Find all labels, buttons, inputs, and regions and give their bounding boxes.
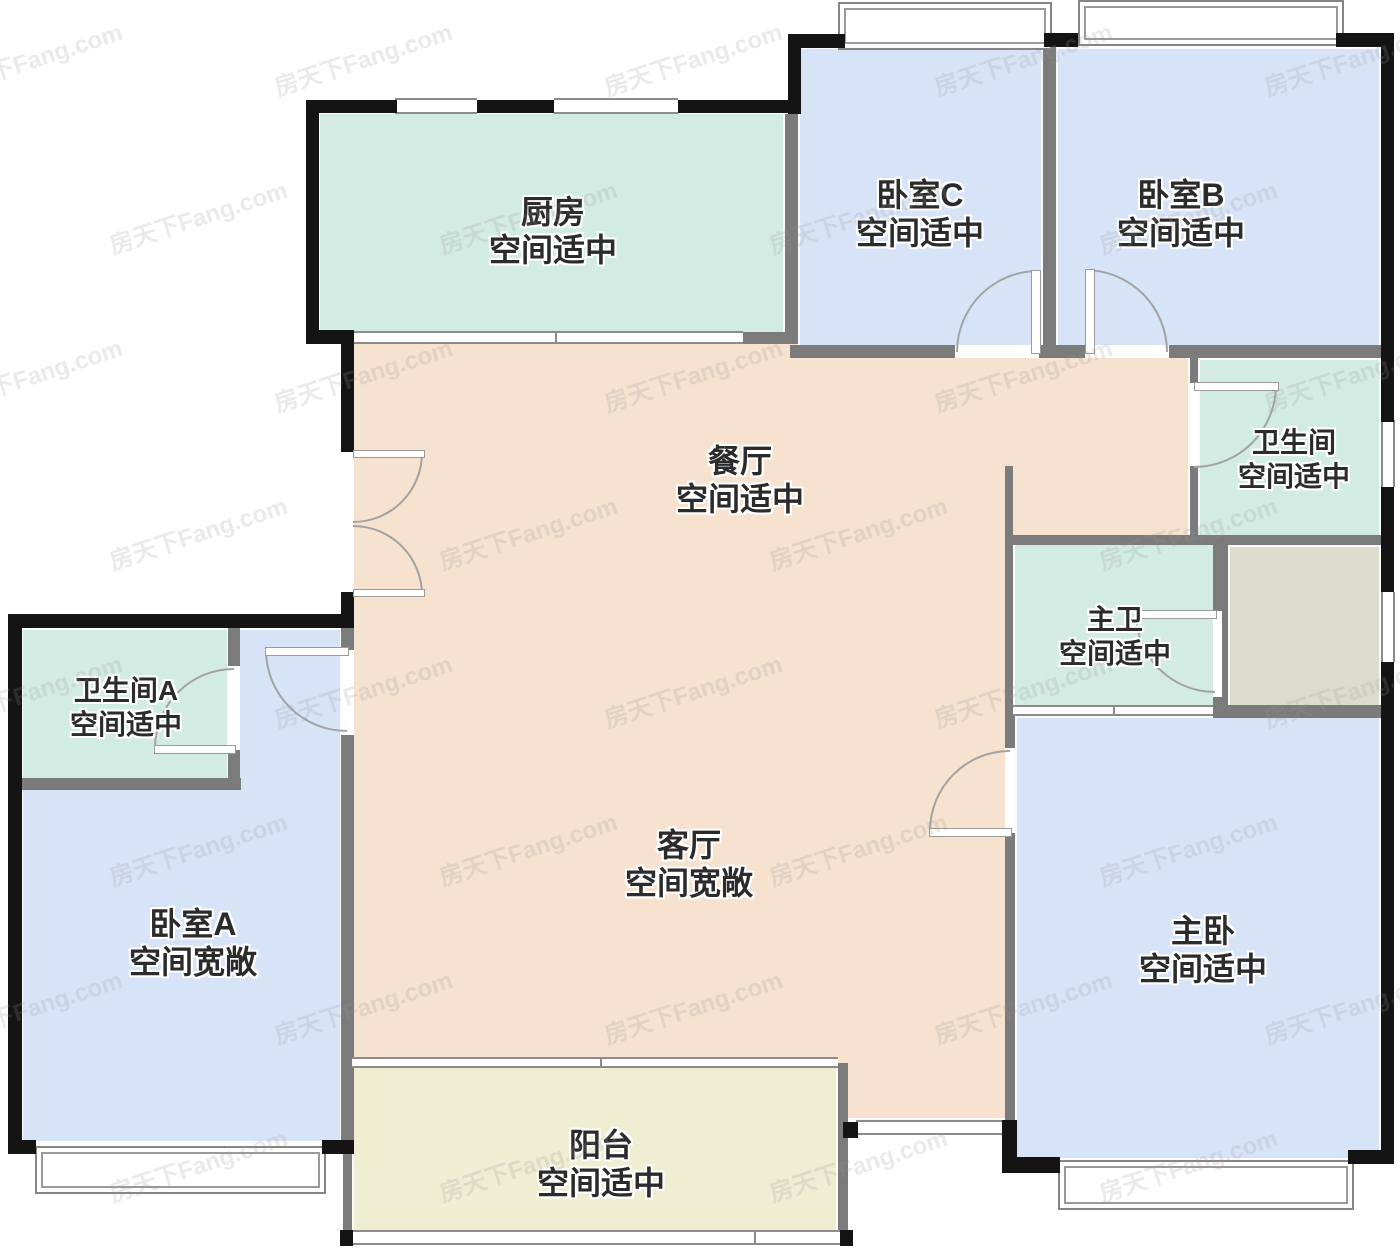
room-note: 空间适中: [70, 708, 182, 742]
door-leaf: [154, 745, 236, 754]
door-leaf: [929, 828, 1012, 837]
exterior-wall-segment: [322, 1140, 354, 1154]
exterior-wall-segment: [678, 100, 800, 113]
exterior-wall-segment: [843, 1122, 858, 1138]
room-label-master-bedroom: 主卧 空间适中: [1139, 912, 1267, 988]
interior-wall-segment: [228, 628, 240, 668]
room-label-bathroom: 卫生间 空间适中: [1238, 426, 1350, 494]
room-name: 客厅: [625, 826, 753, 864]
watermark-text: 房天下Fang.com: [599, 12, 786, 103]
room-name: 卫生间: [1238, 426, 1350, 460]
exterior-wall-segment: [306, 100, 319, 341]
watermark-text: 房天下Fang.com: [0, 12, 126, 103]
bay-window: [35, 1146, 326, 1194]
room-name: 厨房: [489, 193, 617, 231]
room-note: 空间适中: [676, 480, 804, 518]
door-leaf: [353, 589, 425, 597]
room-name: 主卧: [1139, 912, 1267, 950]
room-name: 主卫: [1059, 603, 1171, 637]
window: [1381, 592, 1395, 662]
room-note: 空间适中: [489, 231, 617, 269]
window: [352, 331, 743, 344]
exterior-wall-segment: [1381, 34, 1394, 360]
interior-wall-segment: [1005, 833, 1015, 1123]
interior-wall-segment: [1005, 535, 1390, 545]
room-note: 空间适中: [537, 1164, 665, 1202]
bay-window: [838, 2, 1052, 50]
interior-wall-segment: [1213, 705, 1385, 718]
interior-wall-segment: [1005, 466, 1013, 716]
room-label-bedroom-c: 卧室C 空间适中: [856, 176, 984, 252]
room-note: 空间适中: [1059, 637, 1171, 671]
room-label-kitchen: 厨房 空间适中: [489, 193, 617, 269]
room-closet: [1228, 545, 1381, 707]
room-label-living: 客厅 空间宽敞: [625, 826, 753, 902]
interior-wall-segment: [21, 778, 241, 790]
exterior-wall-segment: [788, 34, 845, 48]
exterior-wall-segment: [8, 1140, 36, 1154]
bay-window: [1058, 1160, 1354, 1210]
exterior-wall-segment: [341, 330, 354, 452]
door-leaf: [1194, 382, 1279, 391]
room-note: 空间宽敞: [129, 943, 257, 981]
exterior-wall-segment: [1381, 662, 1394, 1163]
room-name: 餐厅: [676, 442, 804, 480]
watermark-text: 房天下Fang.com: [269, 12, 456, 103]
door-leaf: [353, 450, 425, 458]
exterior-wall-segment: [8, 614, 22, 1154]
room-note: 空间适中: [1139, 950, 1267, 988]
exterior-wall-segment: [1348, 1150, 1394, 1164]
exterior-wall-segment: [306, 100, 397, 113]
room-label-bathroom-a: 卫生间A 空间适中: [70, 674, 182, 742]
interior-wall-segment: [1043, 47, 1056, 347]
room-label-bedroom-a: 卧室A 空间宽敞: [129, 905, 257, 981]
exterior-wall-segment: [340, 1230, 353, 1246]
bay-window: [1078, 0, 1344, 46]
room-name: 卫生间A: [70, 674, 182, 708]
window: [395, 98, 477, 114]
exterior-wall-segment: [1381, 487, 1394, 592]
window: [1381, 420, 1395, 487]
interior-wall-segment: [838, 1063, 848, 1230]
room-label-balcony: 阳台 空间适中: [537, 1126, 665, 1202]
window: [856, 1120, 1002, 1135]
exterior-wall-segment: [8, 614, 354, 628]
room-label-master-bath: 主卫 空间适中: [1059, 603, 1171, 671]
watermark-text: 房天下Fang.com: [104, 170, 291, 261]
watermark-text: 房天下Fang.com: [0, 328, 126, 419]
room-note: 空间适中: [1238, 460, 1350, 494]
glass-partition: [1013, 705, 1213, 716]
exterior-wall-segment: [840, 1230, 853, 1246]
room-label-bedroom-b: 卧室B 空间适中: [1117, 176, 1245, 252]
interior-wall-segment: [785, 114, 798, 334]
window: [352, 1230, 840, 1245]
room-note: 空间适中: [1117, 214, 1245, 252]
room-note: 空间适中: [856, 214, 984, 252]
interior-wall-segment: [1005, 716, 1015, 750]
window: [352, 1057, 838, 1068]
watermark-text: 房天下Fang.com: [104, 486, 291, 577]
floor-plan: 厨房 空间适中 卧室C 空间适中 卧室B 空间适中 卫生间 空间适中 主卫 空间…: [0, 0, 1400, 1249]
room-name: 卧室B: [1117, 176, 1245, 214]
door-leaf: [1085, 269, 1095, 354]
exterior-wall-segment: [1002, 1120, 1017, 1173]
door-leaf: [265, 647, 349, 656]
exterior-wall-segment: [477, 100, 554, 113]
window: [554, 98, 678, 114]
exterior-wall-segment: [1044, 33, 1078, 47]
room-name: 阳台: [537, 1126, 665, 1164]
room-name: 卧室A: [129, 905, 257, 943]
door-leaf: [1031, 270, 1041, 354]
room-note: 空间宽敞: [625, 864, 753, 902]
exterior-wall-segment: [1381, 358, 1394, 422]
room-label-dining: 餐厅 空间适中: [676, 442, 804, 518]
room-name: 卧室C: [856, 176, 984, 214]
